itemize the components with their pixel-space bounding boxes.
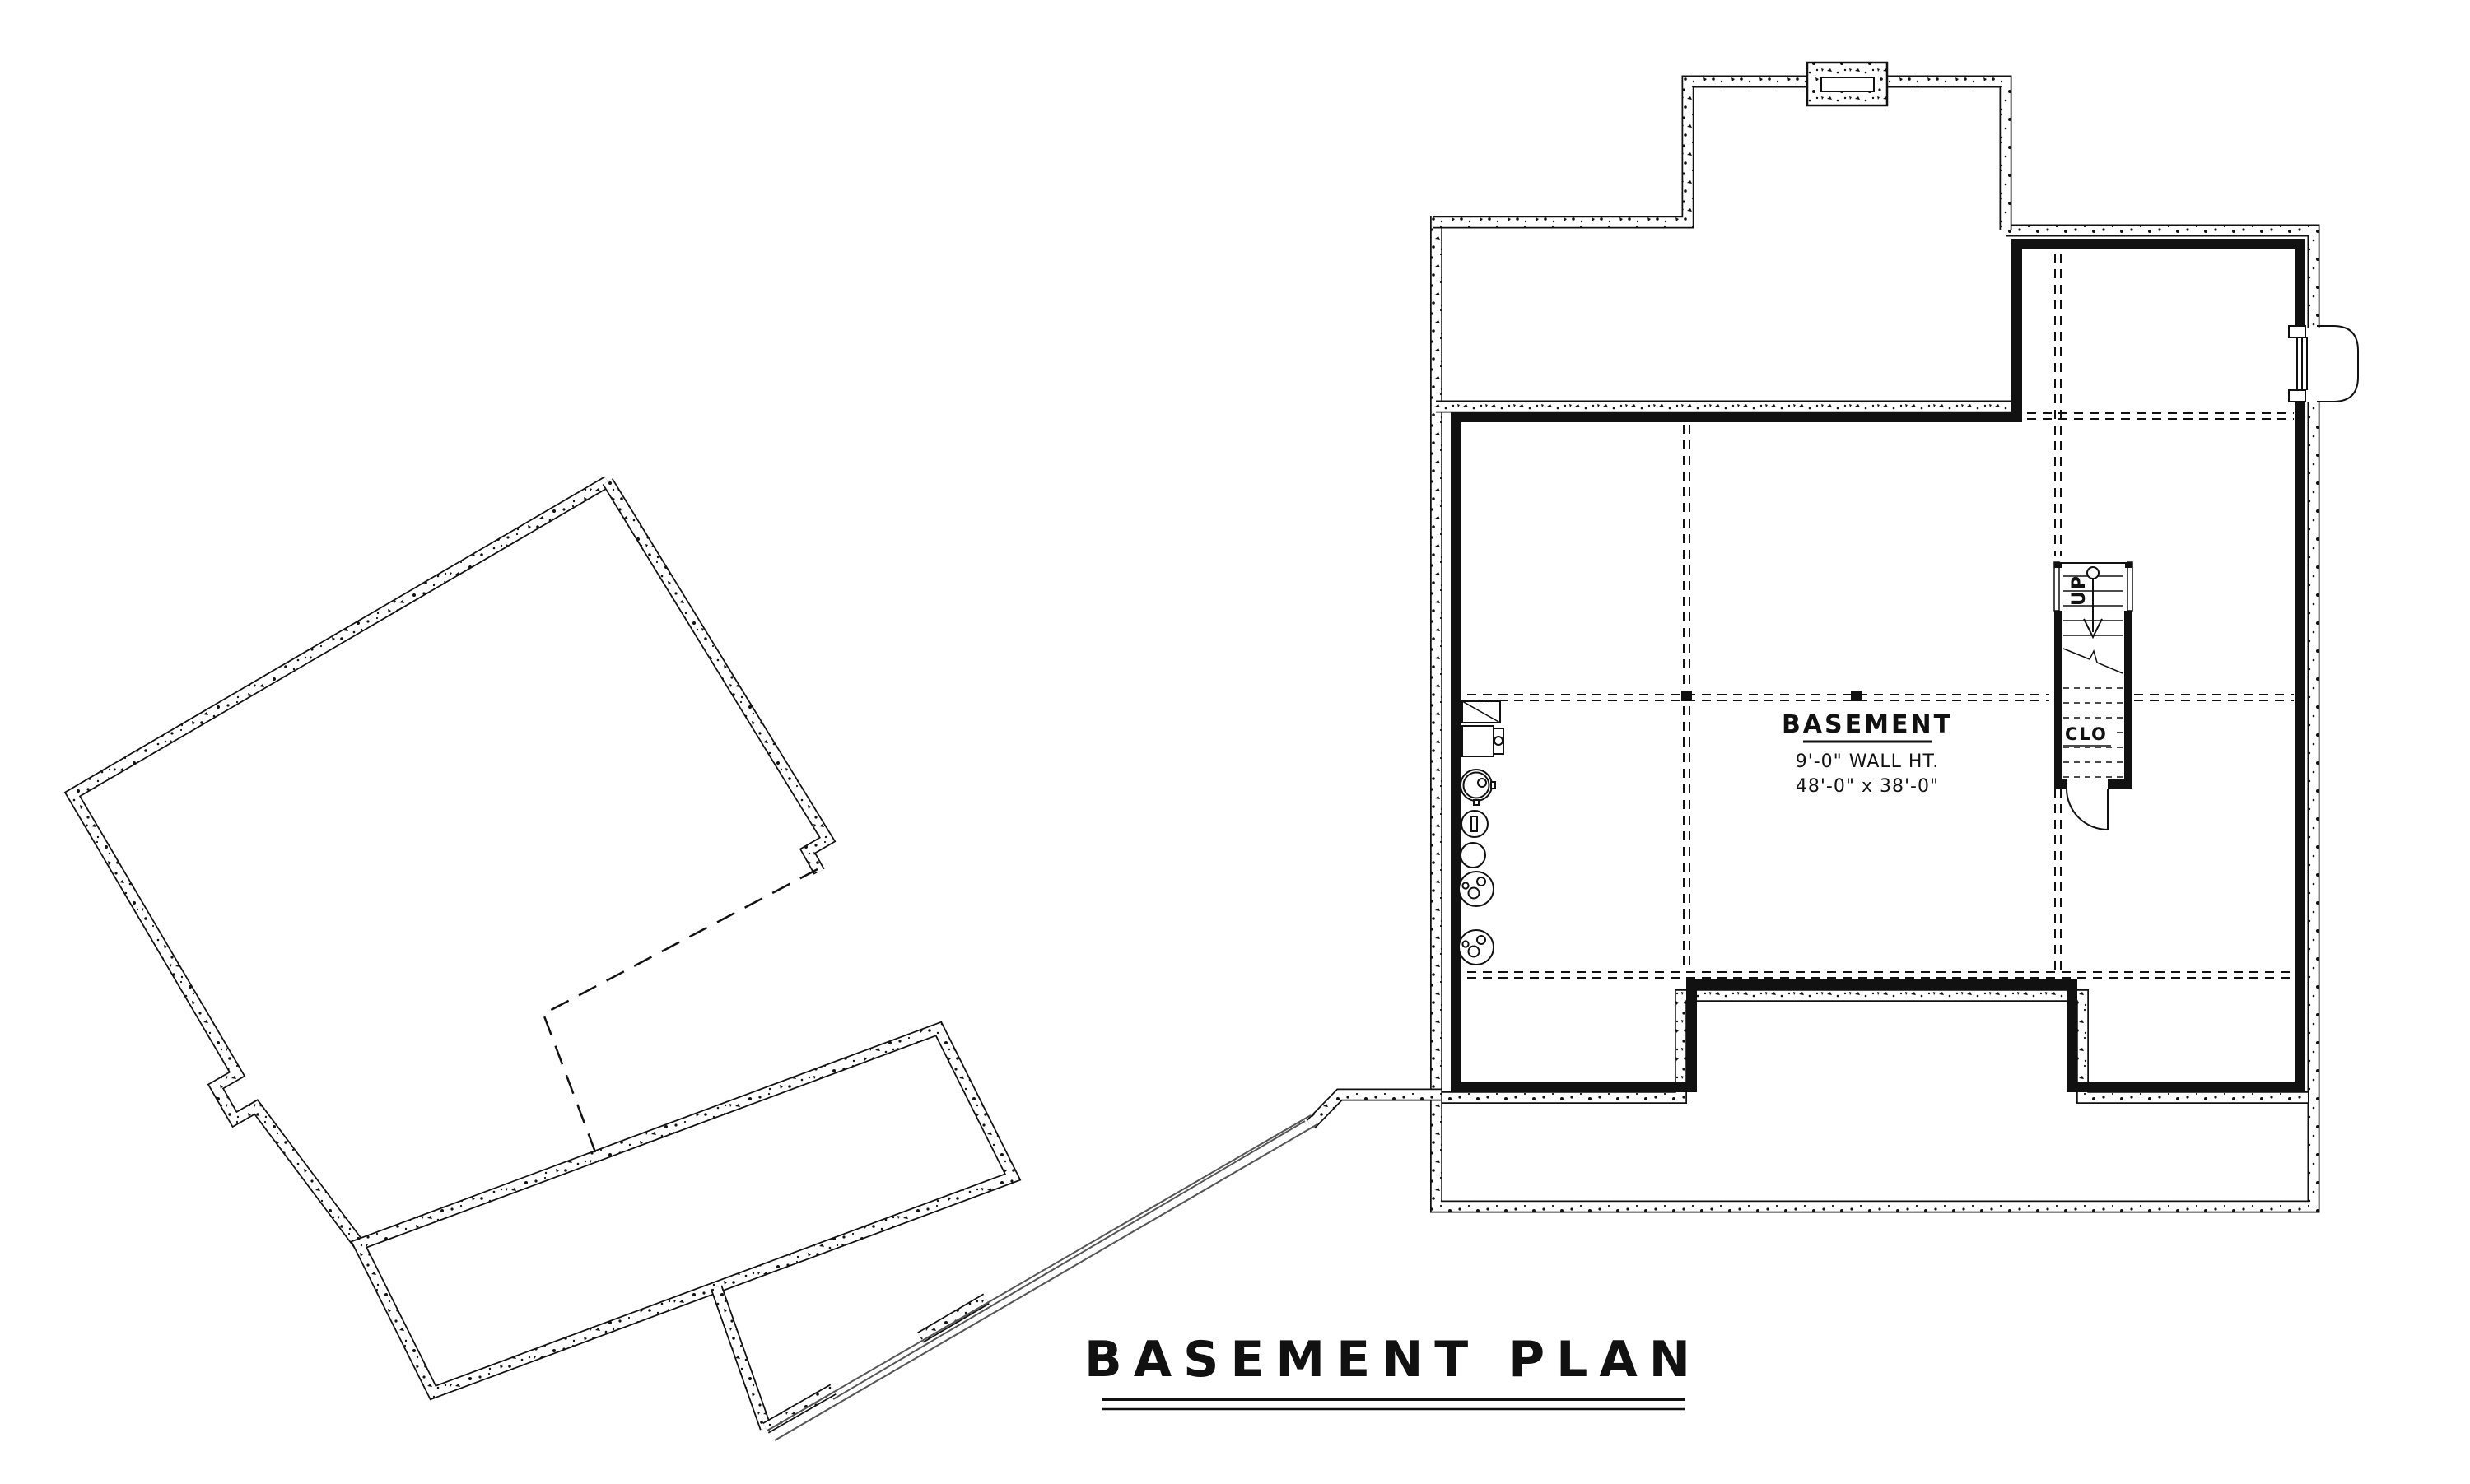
support-column — [1851, 691, 1862, 701]
stairwell: UP CLO — [2054, 562, 2132, 830]
stair-wall-right — [2124, 611, 2132, 789]
chimney — [1807, 63, 1887, 105]
sump-basket-icon — [1461, 843, 1485, 868]
room-wall-height: 9'-0" WALL HT. — [1796, 751, 1940, 772]
room-dimensions: 48'-0" x 38'-0" — [1796, 776, 1939, 797]
chimney-flue — [1821, 77, 1874, 91]
wing-right-edge — [608, 481, 827, 872]
wingwall-stipple-segments — [766, 1299, 986, 1428]
dashed-reference-lines — [1467, 254, 2294, 978]
sheet-title: BASEMENT PLAN — [1084, 1331, 1702, 1409]
window-well — [2317, 326, 2358, 402]
sheet-title-text: BASEMENT PLAN — [1084, 1331, 1702, 1389]
water-heater-icon — [1461, 770, 1495, 805]
stair-break-line — [2063, 649, 2123, 673]
room-name: BASEMENT — [1782, 710, 1953, 739]
furnace-icon — [1462, 701, 1503, 756]
foundation-corridor-wall — [1311, 1095, 1441, 1124]
floor-plan-drawing: UP CLO — [0, 0, 2470, 1484]
support-column — [1681, 691, 1692, 701]
stair-wall-left — [2054, 611, 2062, 789]
closet-label: CLO — [2065, 724, 2108, 744]
mechanical-fixtures — [1459, 701, 1503, 965]
egress-window — [2289, 326, 2358, 402]
pressure-tank-icon — [1459, 930, 1494, 965]
stair-door — [2067, 789, 2108, 830]
retaining-wing-wall-lines — [767, 1115, 1317, 1440]
basement-walls — [1451, 244, 2300, 1087]
foundation-top-bumpouts — [1433, 81, 2006, 230]
floor-drain-icon — [1461, 811, 1488, 837]
wing-top-left-edge — [72, 481, 608, 1244]
wing-dashed-boundary — [543, 869, 818, 1156]
stair-up-label: UP — [2069, 575, 2090, 606]
basement-plan-page: UP CLO — [0, 0, 2470, 1484]
wing-corner-wall — [716, 1287, 766, 1428]
pressure-tank-icon — [1459, 872, 1494, 906]
room-label: BASEMENT 9'-0" WALL HT. 48'-0" x 38'-0" — [1782, 710, 1953, 797]
foundation-walls — [72, 63, 2314, 1428]
wing-porch-band — [359, 1029, 1013, 1393]
